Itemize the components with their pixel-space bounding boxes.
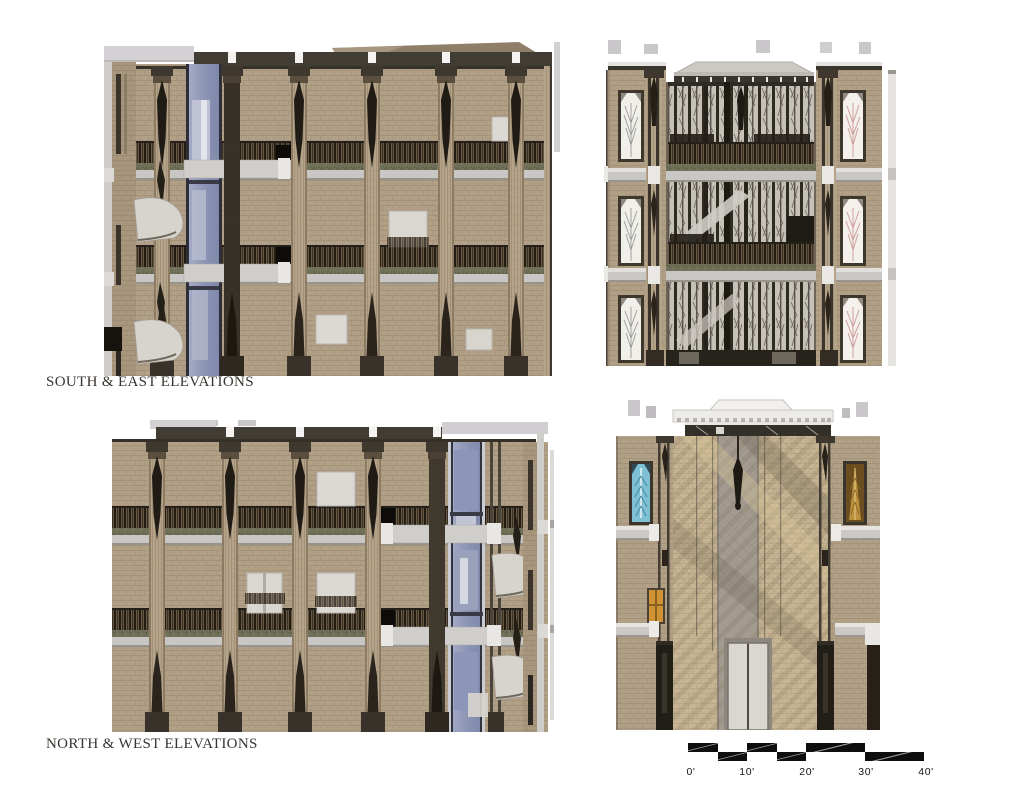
scale-label-0ft: 0' <box>686 766 695 778</box>
south-elevation-render <box>104 40 560 376</box>
presentation-sheet: SOUTH & EAST ELEVATIONS NORTH & WEST ELE… <box>0 0 1024 791</box>
scale-label-20ft: 20' <box>799 766 814 778</box>
caption-north-west-elevations: NORTH & WEST ELEVATIONS <box>46 736 258 753</box>
scale-bar-segment <box>777 752 807 761</box>
west-elevation-render <box>616 398 884 730</box>
north-elevation-render <box>104 420 564 732</box>
scale-bar-segment <box>747 743 777 752</box>
graphic-scale-bar: 0' 10' 20' 30' 40' <box>686 742 936 780</box>
scale-label-40ft: 40' <box>918 766 933 778</box>
north-elevation-drawing <box>104 420 564 732</box>
east-elevation-render <box>604 40 906 366</box>
scale-bar-segment <box>865 752 924 761</box>
west-elevation-drawing <box>616 398 884 730</box>
scale-bar-segment <box>688 743 718 752</box>
east-elevation-drawing <box>604 40 906 366</box>
caption-south-east-elevations: SOUTH & EAST ELEVATIONS <box>46 374 254 391</box>
scale-bar-segment <box>806 743 865 752</box>
scale-label-30ft: 30' <box>858 766 873 778</box>
scale-bar-segment <box>718 752 748 761</box>
scale-label-10ft: 10' <box>739 766 754 778</box>
south-elevation-drawing <box>104 40 560 376</box>
